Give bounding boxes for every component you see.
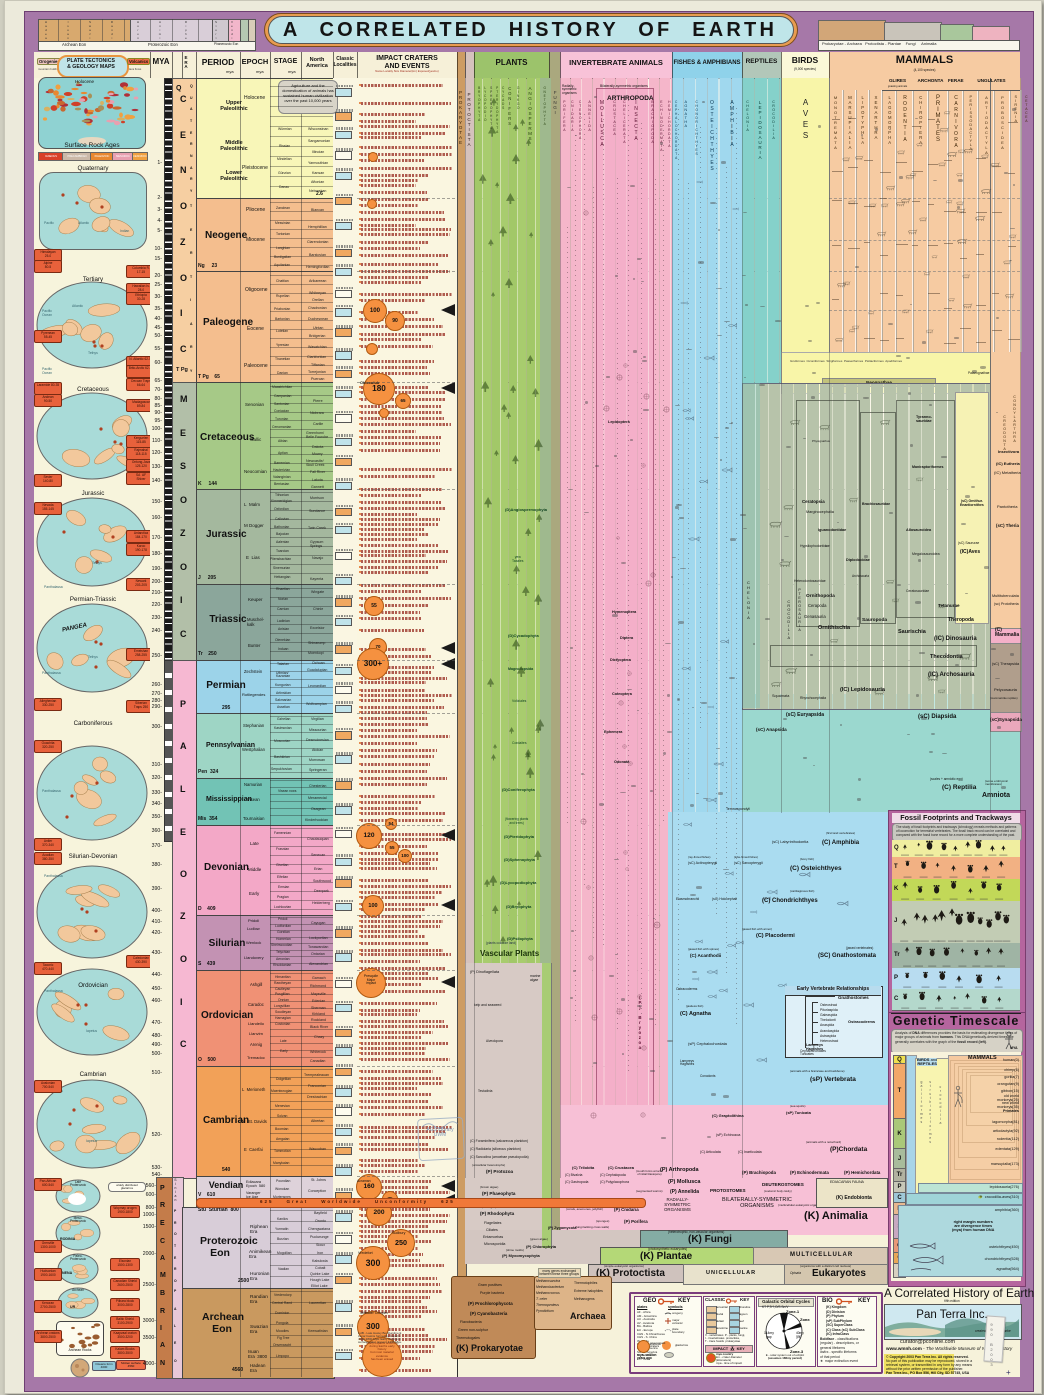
svg-text:Zone-1: Zone-1	[786, 1310, 800, 1314]
svg-text:gap: gap	[796, 1334, 802, 1338]
svg-text:Zone-2: Zone-2	[800, 1317, 810, 1322]
svg-text:gap: gap	[766, 1335, 772, 1339]
